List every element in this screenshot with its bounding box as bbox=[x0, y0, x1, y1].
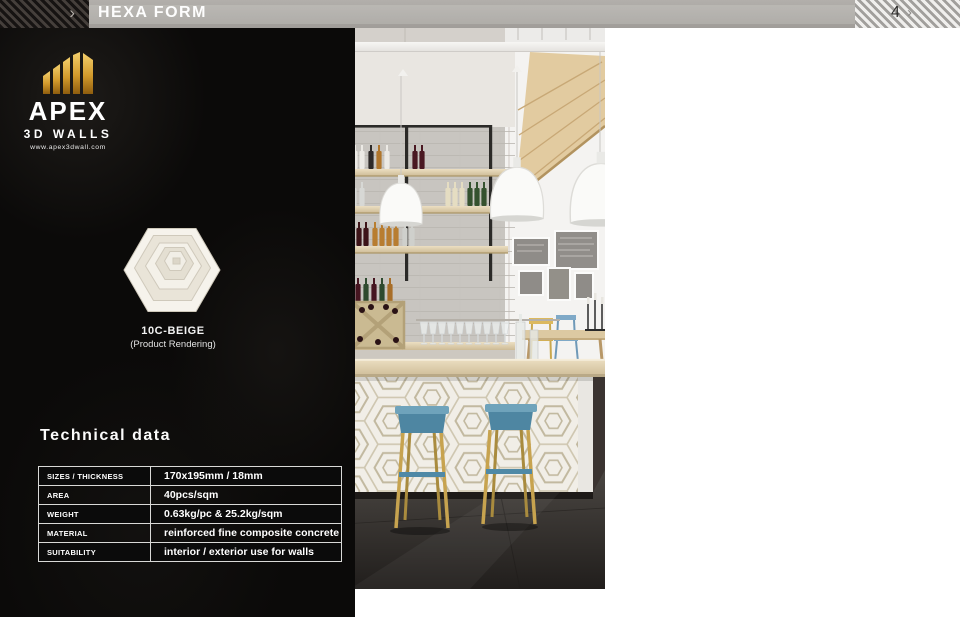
product-note: (Product Rendering) bbox=[48, 339, 298, 350]
table-row: SUITABILITY interior / exterior use for … bbox=[39, 543, 342, 562]
logo-bars-icon bbox=[42, 52, 94, 94]
row-label: SUITABILITY bbox=[39, 543, 151, 562]
info-panel: APEX 3D WALLS www.apex3dwall.com 10C-BEI… bbox=[0, 28, 355, 617]
brand-logo: APEX 3D WALLS www.apex3dwall.com bbox=[18, 52, 118, 151]
chevron-right-icon: › bbox=[69, 3, 75, 23]
brand-name: APEX bbox=[18, 98, 118, 124]
technical-data-heading: Technical data bbox=[40, 427, 171, 445]
catalog-page: › HEXA FORM 4 › APEX 3D WALLS bbox=[0, 0, 960, 617]
table-row: AREA 40pcs/sqm bbox=[39, 486, 342, 505]
brand-website: www.apex3dwall.com bbox=[18, 144, 118, 151]
row-label: MATERIAL bbox=[39, 524, 151, 543]
header-bar: › HEXA FORM 4 › bbox=[0, 0, 960, 28]
chevron-right-icon: › bbox=[907, 4, 912, 21]
header-stripe-right: 4 › bbox=[855, 0, 960, 28]
product-rendering bbox=[112, 218, 232, 322]
row-value: 40pcs/sqm bbox=[151, 486, 342, 505]
table-row: WEIGHT 0.63kg/pc & 25.2kg/sqm bbox=[39, 505, 342, 524]
row-value: 0.63kg/pc & 25.2kg/sqm bbox=[151, 505, 342, 524]
header-stripe-left: › bbox=[0, 0, 89, 28]
row-label: WEIGHT bbox=[39, 505, 151, 524]
row-label: SIZES / THICKNESS bbox=[39, 467, 151, 486]
chalkboards bbox=[513, 231, 598, 300]
row-value: interior / exterior use for walls bbox=[151, 543, 342, 562]
brand-tagline: 3D WALLS bbox=[18, 127, 118, 141]
table-row: MATERIAL reinforced fine composite concr… bbox=[39, 524, 342, 543]
page-title: HEXA FORM bbox=[98, 4, 207, 22]
product-code: 10C-BEIGE bbox=[48, 325, 298, 337]
page-number: 4 bbox=[891, 4, 900, 22]
technical-data-table: SIZES / THICKNESS 170x195mm / 18mm AREA … bbox=[38, 466, 342, 562]
product-caption: 10C-BEIGE (Product Rendering) bbox=[48, 325, 298, 350]
row-value: reinforced fine composite concrete bbox=[151, 524, 342, 543]
table-row: SIZES / THICKNESS 170x195mm / 18mm bbox=[39, 467, 342, 486]
row-value: 170x195mm / 18mm bbox=[151, 467, 342, 486]
row-label: AREA bbox=[39, 486, 151, 505]
hexagon-tile-render bbox=[112, 218, 232, 322]
